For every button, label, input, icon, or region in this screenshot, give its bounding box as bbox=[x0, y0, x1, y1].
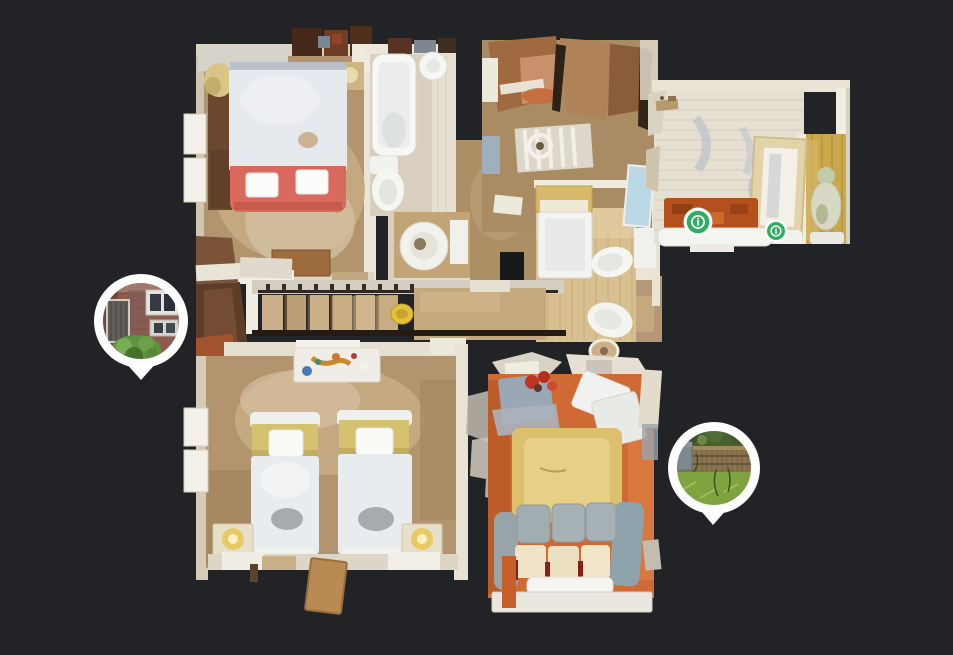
open-door bbox=[305, 558, 347, 614]
twin-bed-2 bbox=[337, 410, 412, 560]
window-left-1 bbox=[184, 114, 206, 154]
nightstand-right bbox=[402, 524, 442, 556]
room-master-bedroom[interactable] bbox=[184, 26, 376, 284]
room-shower-room[interactable] bbox=[388, 212, 470, 286]
room-main-bathroom[interactable] bbox=[366, 38, 456, 216]
stair-treads bbox=[262, 295, 398, 334]
dresser bbox=[294, 348, 380, 382]
window-left-3 bbox=[184, 408, 208, 446]
nightstand-left bbox=[213, 524, 253, 556]
room-living-room[interactable] bbox=[466, 352, 662, 612]
window-left-4 bbox=[184, 450, 208, 492]
info-marker-1[interactable]: i bbox=[684, 208, 713, 237]
laundry-basket bbox=[391, 304, 413, 324]
bathtub bbox=[372, 54, 416, 156]
double-bed bbox=[229, 62, 347, 212]
radiator-bench bbox=[658, 228, 772, 246]
pedestal-sink bbox=[419, 52, 447, 80]
striped-rug bbox=[515, 123, 594, 172]
dollhouse-view: i i bbox=[0, 0, 953, 655]
window-left-2 bbox=[184, 158, 206, 202]
shower-enclosure bbox=[538, 212, 592, 278]
twin-bed-1 bbox=[250, 412, 320, 560]
info-marker-2[interactable]: i bbox=[765, 220, 788, 243]
sofa bbox=[494, 501, 645, 595]
round-shower-tray bbox=[400, 222, 448, 270]
info-marker-symbol: i bbox=[775, 227, 778, 236]
info-marker-symbol: i bbox=[696, 217, 699, 228]
